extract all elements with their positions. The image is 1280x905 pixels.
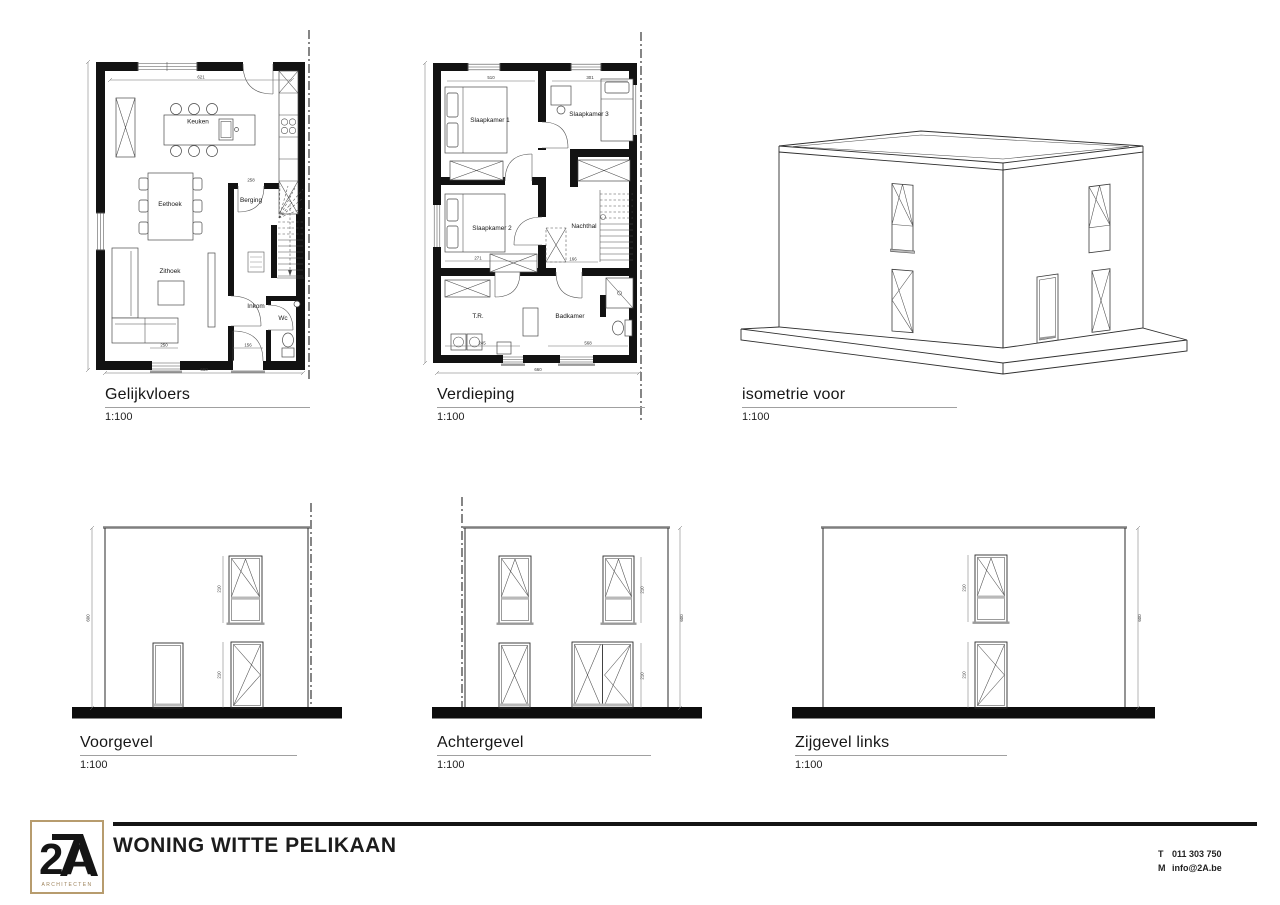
isometric-view <box>725 100 1200 425</box>
title-verdieping: Verdieping <box>437 386 645 404</box>
stair-void <box>546 228 566 262</box>
front-door <box>153 643 183 708</box>
dimensions: 210 210 600 <box>86 526 224 710</box>
svg-text:510: 510 <box>487 75 495 80</box>
view-title-gelijkvloers: Gelijkvloers 1:100 <box>105 386 310 423</box>
svg-text:660: 660 <box>200 367 208 372</box>
svg-text:166: 166 <box>569 257 577 262</box>
room-label-tr: T.R. <box>472 313 484 320</box>
dimensions: 210 210 600 <box>962 526 1143 710</box>
dimensions: 210 210 600 <box>640 526 685 710</box>
svg-text:210: 210 <box>217 585 222 593</box>
svg-text:600: 600 <box>1137 614 1142 622</box>
iso-window-left-lower <box>892 269 913 332</box>
title-voorgevel: Voorgevel <box>80 734 297 752</box>
bed-sk3 <box>601 79 633 141</box>
flat-roof <box>779 131 1143 170</box>
svg-text:600: 600 <box>679 614 684 622</box>
inkom-door-arc <box>231 296 261 326</box>
room-label-badkamer: Badkamer <box>555 313 585 320</box>
room-label-zithoek: Zithoek <box>160 268 182 275</box>
view-title-isometrie: isometrie voor 1:100 <box>742 386 957 423</box>
title-isometrie: isometrie voor <box>742 386 957 404</box>
window-upper-left <box>497 556 534 625</box>
svg-text:210: 210 <box>962 584 967 592</box>
berging-legend-box <box>248 252 264 272</box>
logo-sub-text: ARCHITECTEN <box>42 882 93 888</box>
room-label-keuken: Keuken <box>187 119 209 126</box>
svg-text:210: 210 <box>217 671 222 679</box>
scale-achtergevel: 1:100 <box>437 759 651 771</box>
project-title: WONING WITTE PELIKAAN <box>113 834 396 858</box>
room-label-slaapkamer2: Slaapkamer 2 <box>472 225 512 232</box>
svg-text:245: 245 <box>478 341 486 346</box>
window-upper <box>227 556 265 625</box>
title-underline <box>742 407 957 408</box>
svg-text:210: 210 <box>962 671 967 679</box>
svg-text:568: 568 <box>584 341 592 346</box>
footer-rule <box>113 822 1257 826</box>
bed-sk2 <box>445 194 505 252</box>
svg-text:250: 250 <box>160 343 168 348</box>
ground-line <box>432 707 702 719</box>
wardrobe-sk1 <box>450 161 503 180</box>
title-achtergevel: Achtergevel <box>437 734 651 752</box>
iso-door-right <box>1037 274 1058 343</box>
email-label: M <box>1158 861 1172 875</box>
scale-gelijkvloers: 1:100 <box>105 411 310 423</box>
plan-verdieping: Slaapkamer 1 Slaapkamer 3 Slaapkamer 2 N… <box>400 25 660 425</box>
phone-label: T <box>1158 847 1172 861</box>
room-label-nachthal: Nachthal <box>571 223 596 230</box>
view-title-zijgevel-links: Zijgevel links 1:100 <box>795 734 1007 771</box>
wardrobe-sk2 <box>490 254 537 272</box>
scale-voorgevel: 1:100 <box>80 759 297 771</box>
house-walls <box>779 152 1143 348</box>
badkamer-fixtures <box>523 278 633 336</box>
elevation-achtergevel: 210 210 600 <box>420 495 720 725</box>
svg-text:301: 301 <box>586 75 594 80</box>
iso-window-right-upper <box>1089 184 1110 253</box>
ground-line <box>792 707 1155 719</box>
title-underline <box>795 755 1007 756</box>
window-lower <box>231 642 263 708</box>
svg-text:258: 258 <box>247 178 255 183</box>
room-label-berging: Berging <box>240 197 262 204</box>
company-logo: 2A ARCHITECTEN <box>30 820 104 894</box>
room-label-wc: Wc <box>278 315 288 322</box>
contact-phone-row: T011 303 750 <box>1158 847 1222 861</box>
svg-text:271: 271 <box>474 256 482 261</box>
view-title-verdieping: Verdieping 1:100 <box>437 386 645 423</box>
elevation-zijgevel-links: 210 210 600 <box>780 495 1170 725</box>
drawing-sheet: Keuken Eethoek Zithoek Berging Inkom Wc … <box>0 0 1280 905</box>
window-upper-right <box>601 556 637 625</box>
scale-zijgevel-links: 1:100 <box>795 759 1007 771</box>
door-window-lower-left <box>499 643 530 708</box>
title-gelijkvloers: Gelijkvloers <box>105 386 310 404</box>
iso-window-left-upper <box>891 184 915 254</box>
kitchen-counter <box>279 71 298 214</box>
phone-number: 011 303 750 <box>1172 849 1222 859</box>
kitchen-island <box>164 104 255 157</box>
scale-isometrie: 1:100 <box>742 411 957 423</box>
plan-gelijkvloers: Keuken Eethoek Zithoek Berging Inkom Wc … <box>55 25 330 425</box>
window-lower <box>975 642 1007 708</box>
room-label-inkom: Inkom <box>247 303 264 310</box>
contact-block: T011 303 750 Minfo@2A.be <box>1158 847 1222 875</box>
svg-text:156: 156 <box>244 343 252 348</box>
iso-window-right-lower <box>1092 269 1110 333</box>
base-slab <box>741 327 1187 374</box>
coffee-table <box>158 281 184 305</box>
view-title-achtergevel: Achtergevel 1:100 <box>437 734 651 771</box>
room-label-slaapkamer1: Slaapkamer 1 <box>470 117 510 124</box>
room-label-eethoek: Eethoek <box>158 201 182 208</box>
window-upper <box>973 555 1010 624</box>
closet-nachthal <box>578 160 630 181</box>
email-address: info@2A.be <box>1172 863 1222 873</box>
title-underline <box>437 755 651 756</box>
svg-text:621: 621 <box>197 75 205 80</box>
view-title-voorgevel: Voorgevel 1:100 <box>80 734 297 771</box>
title-underline <box>105 407 310 408</box>
svg-text:210: 210 <box>640 586 645 594</box>
stair <box>600 190 633 262</box>
svg-text:210: 210 <box>640 672 645 680</box>
elevation-voorgevel: 210 210 600 <box>60 495 360 725</box>
title-zijgevel-links: Zijgevel links <box>795 734 1007 752</box>
ground-line <box>72 707 342 719</box>
tv-cabinet <box>208 253 215 327</box>
room-label-slaapkamer3: Slaapkamer 3 <box>569 111 609 118</box>
svg-text:660: 660 <box>534 367 542 372</box>
contact-email-row: Minfo@2A.be <box>1158 861 1222 875</box>
scale-verdieping: 1:100 <box>437 411 645 423</box>
desk-sk3 <box>551 86 571 114</box>
svg-text:600: 600 <box>86 614 91 622</box>
tall-cabinet <box>116 98 135 157</box>
title-underline <box>437 407 645 408</box>
window-lower-right-wide <box>572 642 633 708</box>
title-underline <box>80 755 297 756</box>
